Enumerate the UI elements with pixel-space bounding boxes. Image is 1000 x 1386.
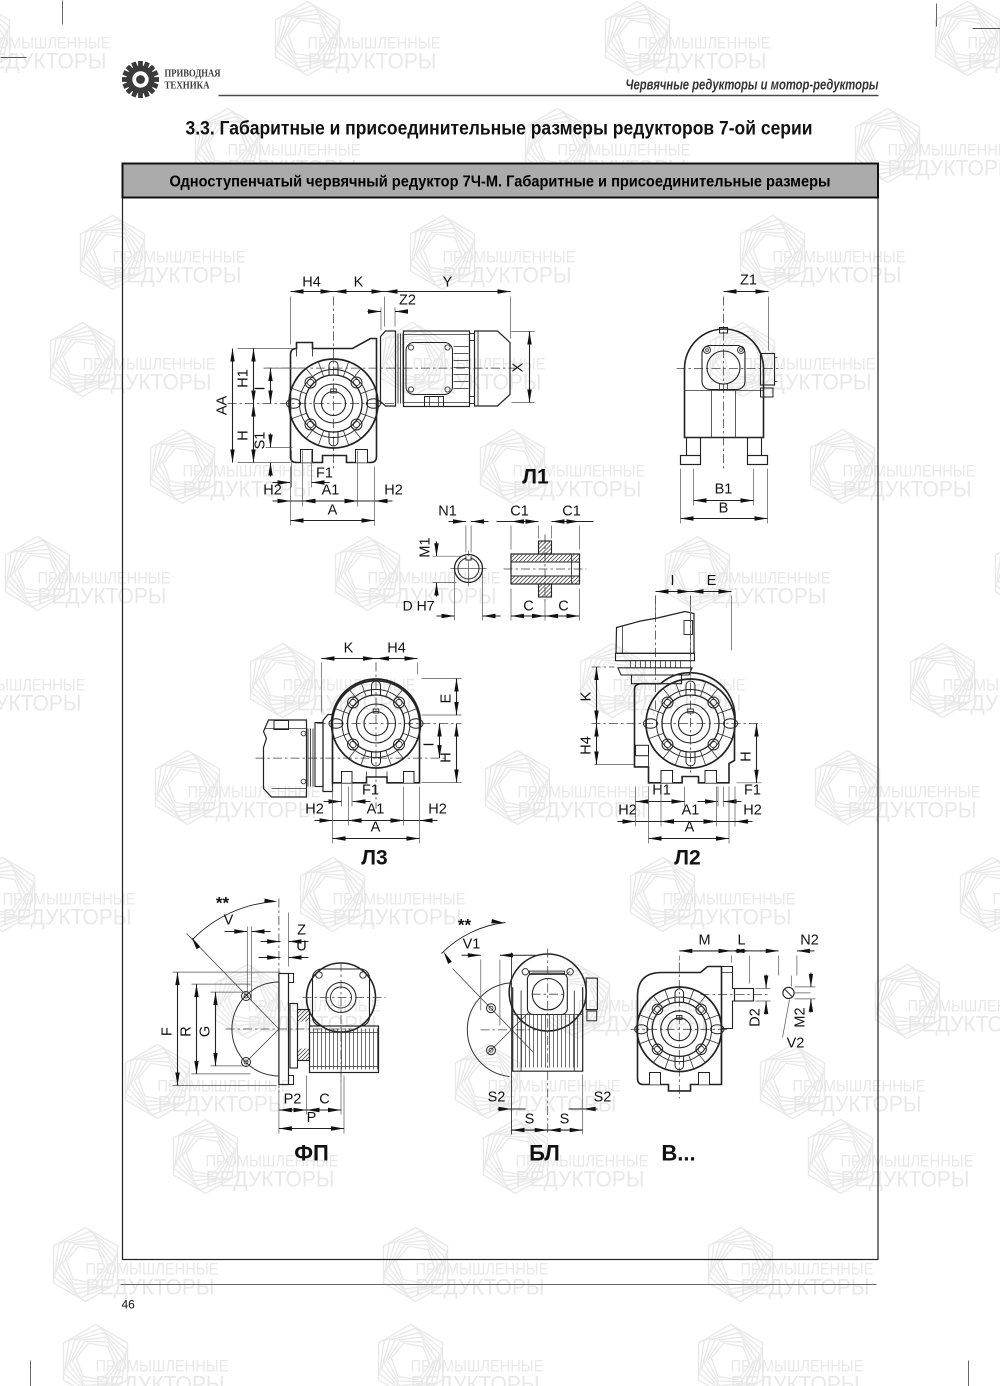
svg-text:I: I <box>253 386 269 390</box>
svg-text:A: A <box>371 820 381 836</box>
svg-text:X: X <box>511 362 527 372</box>
svg-text:ТЕХНИКА: ТЕХНИКА <box>165 81 211 92</box>
svg-text:H1: H1 <box>236 369 252 388</box>
svg-text:H4: H4 <box>579 736 595 755</box>
svg-text:H1: H1 <box>652 783 671 799</box>
svg-text:M1: M1 <box>418 537 434 557</box>
svg-text:B1: B1 <box>715 482 733 498</box>
svg-text:S2: S2 <box>594 1090 612 1106</box>
svg-text:A: A <box>685 820 695 836</box>
svg-text:D H7: D H7 <box>403 598 435 614</box>
svg-text:H2: H2 <box>384 483 403 499</box>
svg-text:Z1: Z1 <box>740 273 757 289</box>
svg-text:H2: H2 <box>618 803 637 819</box>
svg-text:В...: В... <box>661 1141 695 1166</box>
svg-text:Z2: Z2 <box>399 293 416 309</box>
svg-text:H: H <box>236 430 252 440</box>
svg-text:B: B <box>719 501 729 517</box>
svg-text:S: S <box>525 1112 535 1128</box>
svg-text:A: A <box>328 503 338 519</box>
svg-text:K: K <box>344 641 354 657</box>
svg-text:H2: H2 <box>428 802 447 818</box>
svg-text:Z: Z <box>297 923 306 939</box>
svg-text:F1: F1 <box>744 783 761 799</box>
svg-text:P2: P2 <box>284 1092 302 1108</box>
svg-text:H2: H2 <box>743 803 762 819</box>
svg-text:ПРИВОДНАЯ: ПРИВОДНАЯ <box>165 69 222 80</box>
svg-text:F: F <box>160 1027 176 1036</box>
svg-text:**: ** <box>458 916 472 935</box>
svg-text:L: L <box>737 933 745 949</box>
svg-text:C: C <box>523 599 533 615</box>
svg-text:H: H <box>439 752 455 762</box>
svg-text:БЛ: БЛ <box>529 1141 560 1166</box>
svg-text:N1: N1 <box>438 504 457 520</box>
svg-text:H2: H2 <box>305 802 324 818</box>
svg-text:V2: V2 <box>787 1036 805 1052</box>
svg-text:U: U <box>296 939 306 955</box>
svg-text:H: H <box>739 751 755 761</box>
svg-text:F1: F1 <box>362 783 379 799</box>
svg-text:AA: AA <box>215 396 231 416</box>
svg-text:M: M <box>698 933 710 949</box>
svg-text:A1: A1 <box>367 802 385 818</box>
svg-text:**: ** <box>216 894 230 913</box>
svg-text:I: I <box>670 573 674 589</box>
svg-text:E: E <box>707 573 717 589</box>
svg-text:M2: M2 <box>793 1007 809 1027</box>
svg-text:A1: A1 <box>682 803 700 819</box>
svg-text:ФП: ФП <box>294 1141 329 1166</box>
svg-text:I: I <box>422 742 438 746</box>
svg-text:P: P <box>307 1110 317 1126</box>
svg-text:Л3: Л3 <box>361 847 387 870</box>
svg-text:G: G <box>198 1026 214 1037</box>
svg-text:H2: H2 <box>263 483 282 499</box>
svg-text:S: S <box>560 1112 570 1128</box>
svg-text:V: V <box>224 913 234 929</box>
svg-text:3.3. Габаритные и присоедините: 3.3. Габаритные и присоединительные разм… <box>186 119 813 140</box>
svg-text:Одноступенчатый червячный реду: Одноступенчатый червячный редуктор 7Ч-М.… <box>170 174 831 191</box>
svg-text:V1: V1 <box>463 937 481 953</box>
svg-text:D2: D2 <box>748 1008 764 1027</box>
svg-text:C: C <box>558 599 568 615</box>
svg-text:A1: A1 <box>322 483 340 499</box>
svg-text:R: R <box>179 1026 195 1036</box>
svg-text:C1: C1 <box>510 504 529 520</box>
svg-text:S2: S2 <box>488 1090 506 1106</box>
svg-text:K: K <box>579 691 595 701</box>
svg-text:Червячные редукторы и мотор-ре: Червячные редукторы и мотор-редукторы <box>626 77 879 94</box>
svg-text:E: E <box>439 693 455 703</box>
svg-text:46: 46 <box>122 1298 136 1312</box>
svg-text:Л2: Л2 <box>674 847 700 870</box>
svg-text:C: C <box>319 1092 329 1108</box>
svg-text:S1: S1 <box>253 432 269 450</box>
svg-text:Y: Y <box>443 275 453 291</box>
svg-text:H4: H4 <box>387 641 406 657</box>
svg-text:C1: C1 <box>562 504 581 520</box>
svg-text:N2: N2 <box>800 933 819 949</box>
svg-text:Л1: Л1 <box>522 466 549 489</box>
svg-text:F1: F1 <box>316 466 333 482</box>
svg-text:K: K <box>354 275 364 291</box>
svg-text:H4: H4 <box>302 275 321 291</box>
